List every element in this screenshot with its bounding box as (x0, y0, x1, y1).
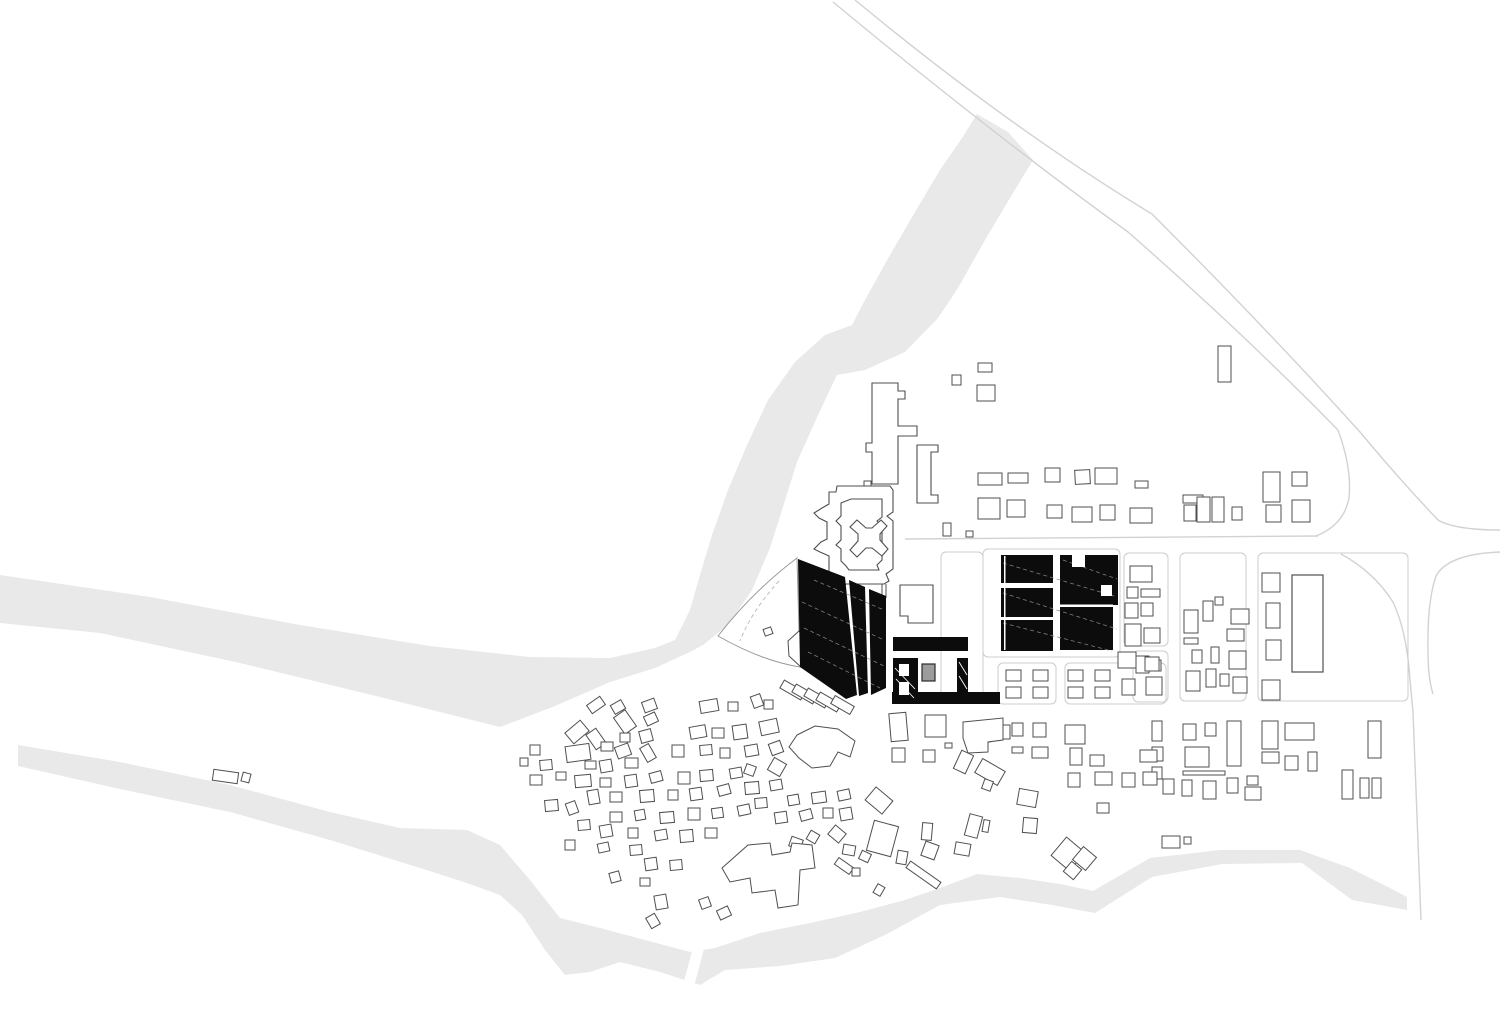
building-footprint (644, 857, 658, 871)
building-footprint (1211, 647, 1219, 663)
building-footprint (565, 840, 575, 850)
building-footprint (1262, 573, 1280, 592)
building-footprint (1125, 603, 1138, 618)
building-footprint (729, 767, 743, 779)
building-footprint (759, 718, 780, 735)
building-footprint (1220, 674, 1229, 686)
building-footprint (1022, 817, 1037, 833)
building-footprint (1262, 680, 1280, 700)
building-footprint (1017, 788, 1038, 807)
building-footprint (565, 743, 591, 762)
building-footprint (1227, 629, 1244, 641)
building-footprint (578, 819, 591, 830)
building-footprint (755, 797, 768, 808)
building-footprint (1247, 776, 1258, 785)
building-footprint (978, 363, 992, 372)
building-footprint (625, 758, 638, 768)
building-footprint (530, 745, 540, 755)
building-footprint (1218, 346, 1231, 382)
building-footprint (1368, 721, 1381, 758)
building-footprint (1122, 679, 1135, 695)
building-footprint (1145, 657, 1159, 671)
building-footprint (620, 733, 630, 742)
project-building-solid (1001, 588, 1053, 617)
building-footprint (678, 772, 690, 784)
building-footprint (1182, 780, 1192, 796)
facade-opening (1101, 585, 1112, 596)
building-footprint (943, 523, 951, 536)
building-footprint (520, 758, 528, 766)
building-footprint (1184, 638, 1198, 644)
building-footprint (1141, 603, 1153, 616)
building-footprint (1033, 670, 1048, 681)
building-footprint-hall (1292, 575, 1323, 672)
building-footprint (1203, 601, 1213, 621)
building-footprint (1186, 671, 1200, 691)
building-footprint (852, 868, 860, 876)
building-footprint (1152, 721, 1162, 741)
building-footprint (1205, 723, 1216, 736)
building-footprint (1130, 508, 1152, 523)
building-footprint (921, 823, 932, 841)
building-footprint (599, 824, 613, 838)
building-footprint (744, 744, 759, 757)
building-footprint (811, 791, 826, 804)
building-footprint (1135, 481, 1148, 488)
building-footprint (1140, 750, 1157, 762)
project-building-solid (1001, 620, 1053, 651)
building-footprint (978, 498, 1000, 519)
building-footprint (1163, 779, 1174, 794)
building-footprint (530, 775, 542, 785)
building-footprint (610, 792, 622, 802)
building-footprint (728, 702, 738, 711)
building-footprint (787, 794, 800, 806)
building-footprint (1215, 597, 1223, 605)
building-footprint (837, 789, 851, 801)
building-footprint (774, 811, 787, 824)
building-footprint (1203, 781, 1216, 799)
building-footprint (1033, 687, 1048, 698)
building-footprint (700, 769, 714, 781)
building-footprint (575, 774, 592, 787)
building-footprint (923, 750, 935, 762)
building-footprint (892, 748, 905, 762)
building-footprint (1227, 721, 1241, 766)
building-footprint (925, 715, 946, 737)
building-footprint (1008, 473, 1028, 483)
building-footprint (1006, 687, 1021, 698)
building-footprint (732, 724, 748, 740)
building-footprint (1292, 472, 1307, 486)
building-footprint (556, 772, 566, 780)
project-building-solid (1060, 555, 1118, 605)
building-footprint (712, 728, 724, 738)
building-footprint (654, 894, 668, 910)
building-footprint (1068, 687, 1083, 698)
building-footprint (639, 729, 654, 744)
building-footprint (624, 774, 638, 788)
building-footprint (1065, 725, 1085, 744)
building-footprint (720, 748, 730, 758)
building-footprint (630, 844, 643, 855)
building-footprint (1118, 652, 1136, 668)
building-footprint (966, 531, 973, 537)
building-footprint (954, 842, 971, 856)
building-footprint (1068, 773, 1080, 787)
building-footprint (540, 759, 553, 770)
building-footprint (601, 742, 613, 751)
building-footprint (1227, 778, 1238, 793)
building-footprint (634, 809, 646, 821)
building-footprint (1122, 773, 1135, 787)
facade-opening (1004, 556, 1006, 650)
building-footprint (823, 808, 833, 818)
building-footprint (1090, 755, 1104, 766)
building-footprint (737, 804, 751, 816)
building-footprint (1146, 677, 1162, 695)
building-footprint (628, 828, 638, 838)
building-footprint (839, 807, 853, 821)
building-footprint (1032, 747, 1048, 758)
building-footprint (769, 779, 783, 791)
building-footprint (1229, 651, 1246, 669)
building-footprint (699, 699, 719, 714)
building-footprint (1141, 589, 1160, 597)
site-plan-map (0, 0, 1500, 1031)
building-footprint (1143, 772, 1157, 785)
highlight-layer (922, 664, 935, 681)
building-footprint (745, 781, 760, 794)
building-footprint (610, 812, 622, 822)
building-footprint (1233, 677, 1247, 693)
building-footprint (977, 385, 995, 401)
building-footprint (1068, 670, 1083, 681)
building-footprint (945, 743, 952, 748)
building-footprint (1183, 724, 1196, 740)
building-footprint (680, 829, 694, 842)
building-footprint (1072, 507, 1092, 522)
building-footprint (1342, 770, 1353, 799)
building-footprint (1045, 468, 1060, 482)
building-footprint (600, 778, 611, 787)
building-footprint (689, 725, 707, 740)
project-building-solid (1001, 555, 1053, 583)
building-footprint (1125, 624, 1141, 646)
project-building-wedge (869, 589, 886, 695)
building-footprint (978, 473, 1002, 485)
building-footprint (1075, 470, 1091, 485)
building-footprint (842, 844, 856, 856)
building-footprint (545, 799, 559, 811)
building-footprint (1144, 628, 1160, 643)
project-building-solid (893, 637, 968, 651)
building-footprint (1070, 748, 1082, 765)
building-footprint (1033, 723, 1046, 737)
building-footprint (587, 789, 600, 805)
building-footprint (1162, 836, 1180, 848)
building-footprint (1285, 756, 1298, 770)
building-footprint (1185, 747, 1209, 767)
building-footprint (1095, 468, 1117, 484)
building-footprint (597, 842, 610, 853)
building-footprint (1372, 778, 1381, 798)
building-footprint (889, 712, 908, 741)
building-footprint (640, 789, 655, 802)
building-footprint (1184, 610, 1198, 633)
building-footprint (1192, 650, 1202, 663)
building-footprint (1245, 787, 1261, 800)
building-footprint (660, 811, 675, 823)
building-footprint (1308, 752, 1317, 771)
building-footprint (1231, 609, 1249, 624)
building-footprint (1360, 778, 1369, 798)
building-footprint (1100, 505, 1115, 520)
building-footprint (1007, 500, 1025, 517)
building-footprint (1262, 721, 1278, 749)
building-footprint (1097, 803, 1109, 813)
building-footprint (609, 871, 621, 883)
building-footprint (1285, 723, 1314, 740)
building-footprint (952, 375, 961, 385)
building-footprint (672, 745, 684, 757)
building-footprint (1012, 723, 1023, 736)
building-footprint (1212, 497, 1224, 522)
building-footprint (711, 807, 723, 818)
building-footprint (1127, 587, 1138, 598)
building-footprint (668, 790, 678, 800)
building-footprint (688, 808, 700, 820)
site-plan-page (0, 0, 1500, 1031)
building-footprint (599, 759, 613, 773)
building-footprint (1266, 640, 1281, 660)
facade-opening (1072, 555, 1085, 567)
building-footprint (1262, 752, 1279, 763)
project-building-solid (1060, 607, 1113, 650)
building-footprint (896, 850, 908, 865)
building-footprint (640, 878, 650, 886)
building-footprint (1095, 687, 1110, 698)
building-footprint (1266, 603, 1280, 628)
building-footprint (689, 787, 703, 801)
building-footprint (1184, 837, 1191, 844)
facade-opening (1060, 605, 1113, 608)
building-footprint (1197, 497, 1210, 522)
building-footprint (1232, 507, 1242, 520)
building-footprint (1095, 670, 1110, 681)
building-footprint (654, 829, 668, 841)
building-footprint (705, 828, 717, 838)
building-footprint (864, 481, 871, 486)
building-footprint (1095, 772, 1112, 785)
building-footprint (1012, 747, 1023, 753)
building-footprint (1047, 505, 1062, 518)
courtyard-highlight-square (922, 664, 935, 681)
building-footprint (1183, 771, 1225, 775)
building-footprint (1263, 472, 1280, 502)
building-footprint (1292, 500, 1310, 522)
building-footprint (764, 700, 773, 709)
building-footprint (700, 744, 713, 755)
building-footprint (1184, 505, 1196, 521)
building-footprint (241, 772, 251, 783)
building-footprint (1006, 670, 1021, 681)
building-footprint (1206, 669, 1216, 687)
building-footprint (670, 859, 683, 870)
building-footprint (1130, 566, 1152, 582)
building-footprint (585, 761, 596, 769)
building-footprint (1266, 505, 1281, 522)
